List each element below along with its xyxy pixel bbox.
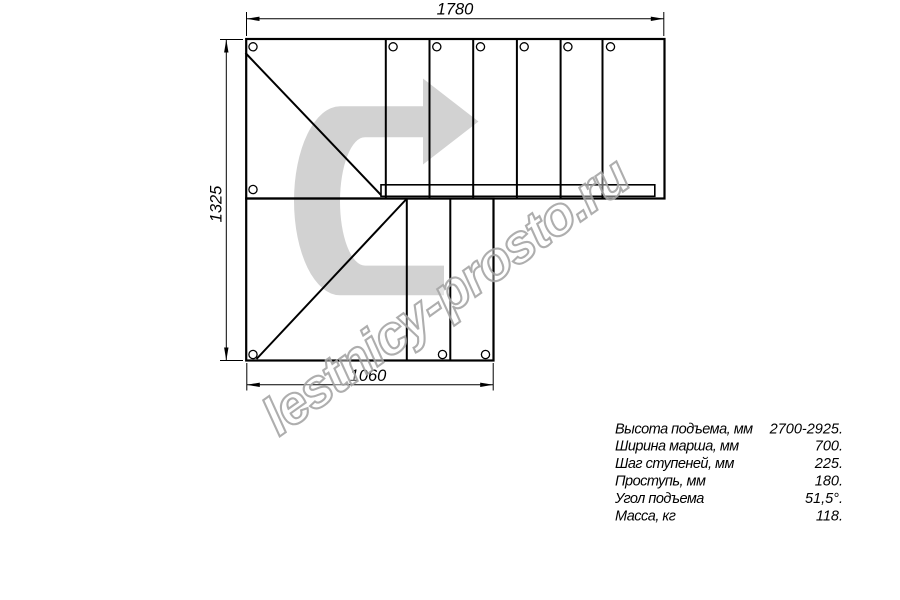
svg-text:2700-2925.: 2700-2925. (769, 421, 843, 437)
svg-text:Масса, кг: Масса, кг (615, 508, 676, 524)
svg-text:180.: 180. (815, 474, 843, 490)
svg-text:51,5°.: 51,5°. (805, 491, 843, 507)
svg-text:Высота подъема, мм: Высота подъема, мм (615, 421, 753, 437)
svg-text:Ширина марша, мм: Ширина марша, мм (615, 439, 739, 455)
svg-text:225.: 225. (814, 456, 843, 472)
svg-text:Шаг ступеней, мм: Шаг ступеней, мм (615, 456, 734, 472)
svg-text:Проступь, мм: Проступь, мм (615, 474, 706, 490)
svg-text:1780: 1780 (437, 1, 475, 19)
svg-text:Угол подъема: Угол подъема (614, 491, 704, 507)
svg-text:118.: 118. (816, 508, 843, 524)
svg-text:1325: 1325 (208, 185, 226, 223)
svg-text:700.: 700. (815, 439, 843, 455)
